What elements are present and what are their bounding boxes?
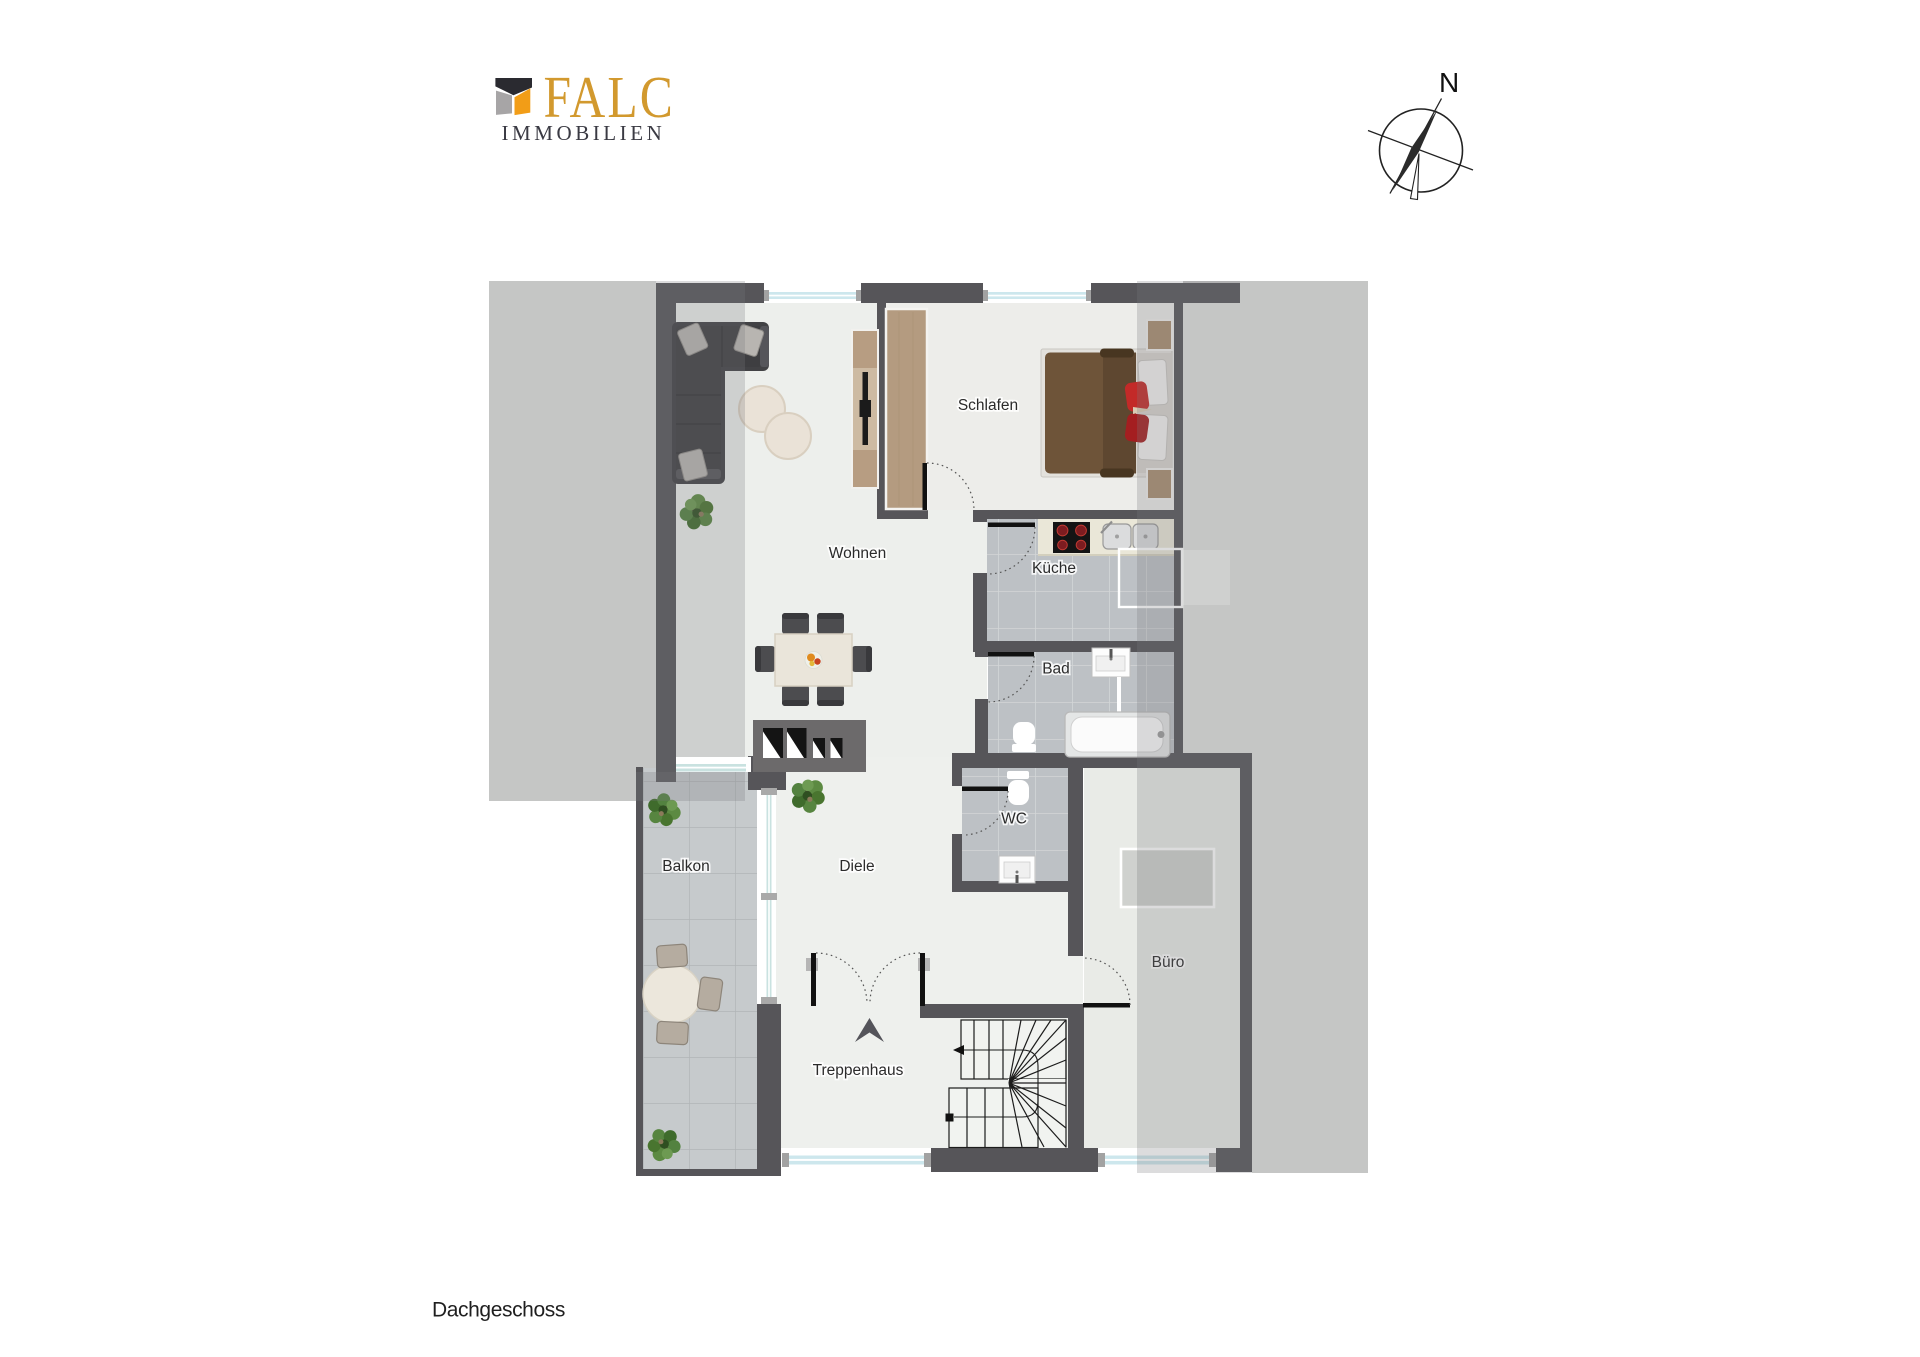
svg-text:Bad: Bad — [1042, 661, 1070, 678]
svg-text:Balkon: Balkon — [662, 858, 709, 875]
svg-text:Wohnen: Wohnen — [829, 545, 886, 562]
svg-text:Schlafen: Schlafen — [958, 397, 1018, 414]
svg-text:Dachgeschoss: Dachgeschoss — [432, 1299, 565, 1322]
svg-text:Treppenhaus: Treppenhaus — [813, 1062, 904, 1079]
svg-text:IMMOBILIEN: IMMOBILIEN — [502, 121, 666, 145]
svg-text:Küche: Küche — [1032, 560, 1076, 577]
svg-text:Diele: Diele — [839, 858, 874, 875]
svg-text:WC: WC — [1001, 811, 1027, 828]
svg-text:N: N — [1439, 67, 1459, 98]
